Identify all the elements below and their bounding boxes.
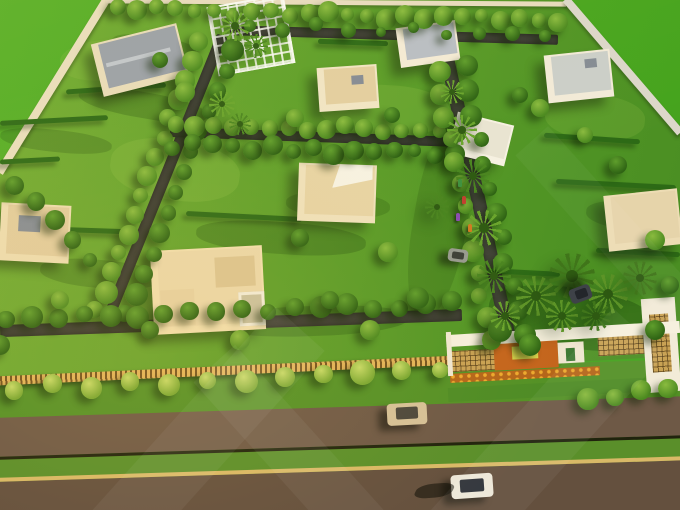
left-road-east-trees	[221, 39, 244, 62]
left-road-west-trees	[119, 225, 139, 245]
mid-road-north-trees	[317, 120, 336, 139]
palm-crown	[592, 312, 600, 320]
villa-roof	[324, 66, 377, 104]
mid-road-south-trees	[243, 141, 262, 160]
tree	[291, 229, 309, 247]
top-tree-row	[454, 8, 471, 25]
top-tree-row-2	[441, 30, 451, 40]
tree	[321, 291, 339, 309]
top-tree-row	[434, 6, 453, 25]
palm-crown	[558, 312, 566, 320]
beige-suv	[386, 402, 427, 426]
boulevard-palm	[425, 195, 449, 219]
palm-crown	[449, 89, 455, 95]
boulevard-west-trees	[429, 61, 451, 83]
top-tree-row	[548, 13, 567, 32]
top-tree-row	[263, 3, 278, 18]
villa-skylight	[351, 75, 364, 85]
tree	[609, 156, 627, 174]
gate-lattice-left	[449, 349, 496, 372]
mid-road-south-trees	[427, 148, 443, 164]
palm-tree	[229, 113, 251, 135]
palm-crown	[469, 172, 478, 181]
boulevard-palm	[477, 259, 511, 293]
top-tree-row	[188, 4, 202, 18]
top-tree-row-2	[275, 23, 290, 38]
person	[468, 224, 472, 232]
verge-trees	[158, 374, 180, 396]
front-inner-trees	[76, 306, 93, 323]
front-inner-trees	[180, 302, 198, 320]
palm-crown	[479, 223, 488, 232]
front-inner-trees	[49, 309, 68, 328]
person	[456, 213, 460, 221]
front-inner-trees	[154, 305, 173, 324]
top-tree-row	[475, 9, 488, 22]
verge-trees	[81, 377, 103, 399]
tree	[175, 82, 195, 102]
villa-skylight	[18, 215, 41, 232]
car-windshield	[574, 288, 588, 300]
palm-crown	[219, 101, 226, 108]
palm-crown	[501, 312, 509, 320]
palm-crown	[531, 291, 541, 301]
front-inner-trees	[207, 302, 225, 320]
site-render: Aerial 3D render of a gated villa plotti…	[0, 0, 680, 510]
left-wall-inner-trees	[5, 176, 24, 195]
boulevard-palm	[490, 301, 520, 331]
car-windshield	[395, 407, 418, 420]
palm-crown	[253, 43, 259, 49]
mid-road-south-trees	[366, 143, 382, 159]
tree	[577, 127, 593, 143]
mid-road-north-trees	[299, 122, 315, 138]
villa-center	[297, 163, 377, 224]
verge-trees	[350, 360, 375, 385]
mid-road-south-trees	[323, 144, 344, 165]
tree	[378, 242, 398, 262]
mid-road-south-trees	[286, 144, 301, 159]
left-road-east-trees	[168, 185, 183, 200]
top-tree-row	[511, 9, 528, 26]
mid-road-south-trees	[184, 134, 201, 151]
gate-palm	[546, 300, 578, 332]
left-wall-inner-trees	[64, 231, 82, 249]
boulevard-east-trees	[457, 55, 478, 76]
boulevard-palm	[456, 159, 490, 193]
villa-skylight	[584, 58, 597, 68]
mid-road-south-trees	[408, 144, 421, 157]
villa-upper-middle	[317, 64, 380, 112]
tree	[51, 291, 69, 309]
tree	[141, 321, 159, 339]
mid-road-north-trees	[168, 116, 185, 133]
left-road-west-trees	[111, 245, 126, 260]
villa-roof	[551, 51, 612, 96]
palm-tree	[220, 11, 250, 41]
palm-tree	[209, 91, 235, 117]
gate-under-tree	[645, 320, 665, 340]
left-road-west-trees	[133, 188, 148, 203]
tree	[360, 320, 380, 340]
mid-road-north-trees	[413, 123, 427, 137]
palm-crown	[434, 204, 440, 210]
villa-deck	[214, 256, 256, 288]
left-wall-inner-trees	[45, 210, 65, 230]
tree	[286, 109, 304, 127]
boulevard-palm	[447, 115, 477, 145]
boulevard-palm	[440, 80, 464, 104]
tree	[152, 52, 168, 68]
palm-crown	[458, 126, 466, 134]
palm-crown	[566, 270, 578, 282]
left-road-west-trees	[182, 51, 202, 71]
left-road-west-trees	[95, 281, 118, 304]
mid-road-south-trees	[386, 142, 402, 158]
left-road-east-trees	[219, 64, 235, 80]
tree	[384, 107, 400, 123]
left-road-west-trees	[189, 32, 208, 51]
front-inner-trees	[442, 291, 462, 311]
tree	[512, 87, 528, 103]
left-road-west-trees	[146, 148, 164, 166]
front-inner-trees	[286, 298, 304, 316]
palm-crown	[237, 121, 243, 127]
verge-trees	[392, 361, 411, 380]
left-road-east-trees	[176, 164, 192, 180]
mid-road-south-trees	[344, 141, 364, 161]
mid-road-north-trees	[375, 124, 391, 140]
front-inner-trees	[100, 305, 122, 327]
palm-crown	[231, 22, 239, 30]
verge-trees	[43, 374, 62, 393]
person	[462, 196, 466, 204]
mid-road-south-trees	[305, 139, 322, 156]
car-windshield	[452, 251, 464, 260]
mid-road-north-trees	[394, 124, 408, 138]
left-road-east-trees	[161, 205, 176, 220]
gray-car-internal	[447, 248, 469, 264]
top-tree-row	[207, 4, 221, 18]
top-tree-row	[110, 0, 126, 15]
palm-crown	[490, 272, 499, 281]
left-wall-inner-trees	[27, 192, 45, 210]
gate-under-tree	[519, 334, 541, 356]
mid-road-north-trees	[262, 120, 278, 136]
mid-road-north-trees	[355, 119, 373, 137]
top-tree-row	[127, 0, 147, 20]
top-tree-row	[532, 13, 546, 27]
villa-right-top	[544, 49, 615, 104]
top-tree-row-2	[473, 27, 486, 40]
left-road-west-trees	[102, 262, 121, 281]
top-tree-row-2	[505, 26, 520, 41]
verge-trees	[5, 381, 24, 400]
top-tree-row-2	[341, 23, 356, 38]
left-road-east-trees	[149, 223, 170, 244]
tree	[407, 287, 429, 309]
mid-road-south-trees	[164, 141, 179, 156]
top-tree-row	[360, 9, 374, 23]
person	[458, 179, 462, 187]
palm-tree	[244, 34, 268, 58]
tree	[531, 99, 549, 117]
palm-crown	[603, 289, 613, 299]
mid-road-south-trees	[203, 135, 222, 154]
front-inner-trees	[21, 306, 42, 327]
